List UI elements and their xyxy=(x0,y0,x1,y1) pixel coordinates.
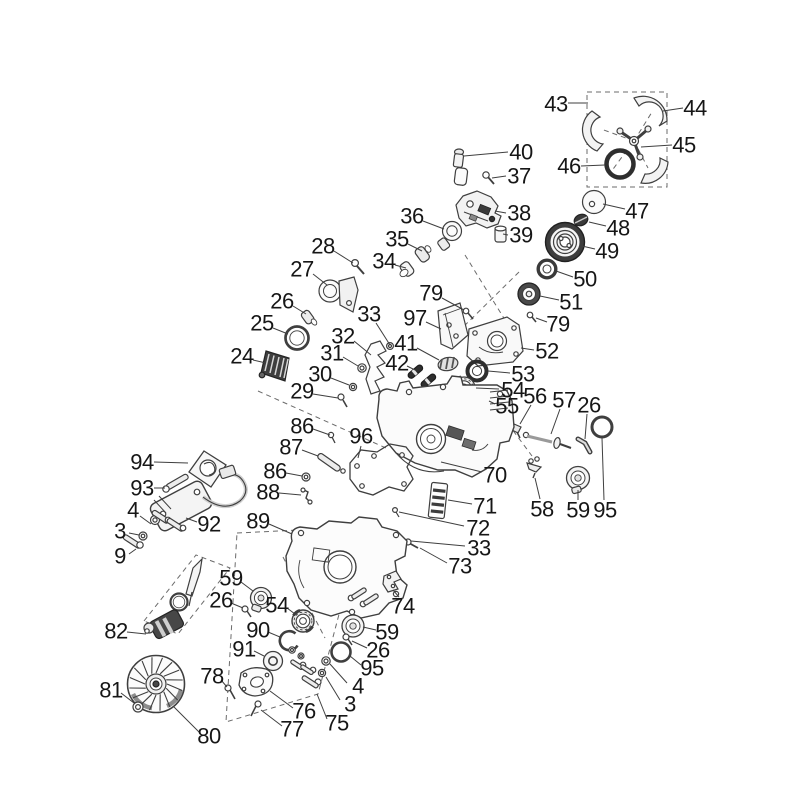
part-label-94: 94 xyxy=(130,450,154,475)
cover-plate-76-screwhole xyxy=(265,673,269,677)
part-label-59: 59 xyxy=(566,498,590,523)
pin-87 xyxy=(317,452,342,472)
part-label-82: 82 xyxy=(104,619,128,644)
leader-51 xyxy=(540,296,559,300)
leader-71 xyxy=(448,500,472,504)
circlip-90 xyxy=(280,631,298,650)
screw-78-shaft xyxy=(230,690,235,699)
washer-3 xyxy=(139,532,147,540)
brake-lever-32 xyxy=(365,341,386,394)
part-label-58: 58 xyxy=(530,497,554,522)
ring-25-inner xyxy=(290,331,304,345)
bracket-74-hole xyxy=(387,575,390,578)
washer-30 xyxy=(349,383,356,390)
clutch-drum-49-hole xyxy=(567,244,571,248)
bracket-74-hole xyxy=(391,584,394,587)
buffer-59b-core xyxy=(258,595,264,601)
leader-33 xyxy=(411,541,465,546)
leader-77 xyxy=(261,710,282,726)
cover-plate-52-hole xyxy=(514,352,518,356)
valve-58-leg xyxy=(533,473,535,478)
part-label-37: 37 xyxy=(507,164,531,189)
part-label-95: 95 xyxy=(593,498,617,523)
part-label-44: 44 xyxy=(683,96,707,121)
leader-36 xyxy=(423,221,444,229)
leader-40 xyxy=(464,152,508,156)
screw-93-head xyxy=(163,486,169,492)
leader-82 xyxy=(127,632,146,634)
screw-26c-shaft xyxy=(247,611,251,617)
part-label-74: 74 xyxy=(391,594,415,619)
part-label-54: 54 xyxy=(265,593,289,618)
leader-87 xyxy=(302,450,318,456)
grommet-36 xyxy=(443,222,462,241)
nut-86 xyxy=(302,473,310,481)
leader-57 xyxy=(551,409,560,434)
leader-48 xyxy=(589,222,606,226)
leader-47 xyxy=(603,204,625,209)
assembly-dash-line xyxy=(465,255,505,320)
guide-plate-97-hole xyxy=(454,334,458,338)
leader-95 xyxy=(602,438,604,500)
part-label-26: 26 xyxy=(209,588,233,613)
leader-27 xyxy=(313,274,327,285)
cover-plate-76-screwhole xyxy=(242,687,246,691)
gasket-96-hole xyxy=(400,453,405,458)
ring-95b xyxy=(332,643,351,662)
parts-diagram: 4344454647484950517940373839363534799728… xyxy=(0,0,800,800)
worm-gear-24-tip xyxy=(259,372,265,378)
leader-30 xyxy=(331,378,349,385)
leader-59 xyxy=(241,582,253,591)
part-label-92: 92 xyxy=(197,512,221,537)
part-label-46: 46 xyxy=(557,154,581,179)
nut-31 xyxy=(358,364,366,372)
part-label-26: 26 xyxy=(577,393,601,418)
leader-37 xyxy=(492,176,506,178)
washer-47-hole xyxy=(589,201,594,206)
brake-pivot-27 xyxy=(319,280,341,302)
leader-38 xyxy=(495,211,506,213)
washer-50 xyxy=(538,260,556,278)
part-label-52: 52 xyxy=(535,339,559,364)
leader-44 xyxy=(663,108,683,111)
washer-4b xyxy=(322,657,330,665)
crankcase-cover-89-hole xyxy=(349,609,354,614)
oil-pump-82-port xyxy=(145,629,149,633)
cover-plate-52-hole xyxy=(473,331,477,335)
cup-washer-51-hole xyxy=(526,291,532,297)
leader-45 xyxy=(641,145,672,147)
crankcase-cover-89-hole xyxy=(393,532,398,537)
part-label-48: 48 xyxy=(606,216,630,241)
leader-9 xyxy=(129,549,136,554)
leader-46 xyxy=(581,165,605,166)
leader-86 xyxy=(286,473,302,476)
part-label-28: 28 xyxy=(311,234,335,259)
pin-72-leg xyxy=(396,512,399,517)
part-label-70: 70 xyxy=(483,463,507,488)
gasket-96-hole xyxy=(360,484,365,489)
leader-28 xyxy=(334,251,353,263)
part-label-49: 49 xyxy=(595,239,619,264)
washer-33 xyxy=(387,343,394,350)
screw-26d-shaft xyxy=(348,639,352,645)
part-label-43: 43 xyxy=(544,92,568,117)
leader-53 xyxy=(488,371,510,373)
part-label-24: 24 xyxy=(230,344,254,369)
part-label-33: 33 xyxy=(357,302,381,327)
part-label-29: 29 xyxy=(290,379,314,404)
leader-26 xyxy=(585,414,587,439)
oil-pump-38-port xyxy=(467,201,473,207)
leader-86 xyxy=(313,429,330,435)
screw-79-shaft xyxy=(532,317,536,322)
washer-3b xyxy=(318,669,325,676)
part-label-87: 87 xyxy=(279,435,303,460)
part-label-50: 50 xyxy=(573,267,597,292)
washer-50-hole xyxy=(543,265,551,273)
crankcase-cover-89-hole xyxy=(298,530,303,535)
oil-seal-53-hole xyxy=(472,366,481,375)
clutch-spider-hub-hole xyxy=(632,139,636,143)
ring-25 xyxy=(286,327,309,350)
part-label-9: 9 xyxy=(114,544,126,569)
cover-plate-52-bore xyxy=(488,332,507,351)
clutch-shoe-top xyxy=(634,96,667,126)
coil-screw-head xyxy=(180,525,186,531)
part-label-89: 89 xyxy=(246,509,270,534)
clutch-shoe-bottom xyxy=(641,158,668,183)
leader-50 xyxy=(556,271,573,277)
brake-pivot-27-hole xyxy=(347,301,352,306)
leader-80 xyxy=(174,707,199,732)
part-label-57: 57 xyxy=(552,388,576,413)
clutch-spring-ring xyxy=(607,151,634,178)
leader-31 xyxy=(343,357,358,366)
nut-81 xyxy=(133,702,143,712)
clutch-shoe-left xyxy=(582,111,603,151)
clip-88-eye xyxy=(301,488,305,492)
part-label-4: 4 xyxy=(127,498,139,523)
ring-95 xyxy=(592,417,612,437)
part-label-78: 78 xyxy=(200,664,224,689)
rod-57-tip xyxy=(560,444,571,448)
cap-40-body xyxy=(454,167,468,185)
gasket-96-hole xyxy=(372,454,377,459)
screw-77-shaft xyxy=(251,706,256,716)
leader-59 xyxy=(363,627,376,630)
screw-79-shaft xyxy=(468,313,473,319)
part-label-39: 39 xyxy=(509,223,533,248)
buffer-59-core xyxy=(575,475,581,481)
leader-90 xyxy=(268,632,280,637)
oiler-trigger xyxy=(186,559,202,596)
rod-57-shaft xyxy=(527,436,552,442)
part-label-73: 73 xyxy=(448,554,472,579)
cap-40-stem xyxy=(453,154,464,168)
clutch-spider-pad xyxy=(617,128,623,134)
part-label-56: 56 xyxy=(523,384,547,409)
clutch-drum-49-hole xyxy=(559,237,563,241)
screw-9-head xyxy=(137,542,143,548)
part-label-55: 55 xyxy=(495,394,519,419)
page: 4344454647484950517940373839363534799728… xyxy=(0,0,800,800)
leader-29 xyxy=(313,394,338,398)
part-label-79: 79 xyxy=(419,281,443,306)
leader-3 xyxy=(326,677,340,700)
part-label-45: 45 xyxy=(672,133,696,158)
leader-88 xyxy=(279,493,301,495)
screw-79-head xyxy=(463,308,469,314)
rod-57-plunger xyxy=(553,437,561,449)
leader-41 xyxy=(417,348,439,360)
clutch-spider-pad xyxy=(637,154,643,160)
screw-86-shaft xyxy=(332,437,335,443)
brake-pivot-27-bracket xyxy=(339,277,358,312)
screw-29-shaft xyxy=(343,400,347,407)
valve-58-body xyxy=(527,463,541,472)
clip-88-eye xyxy=(308,500,312,504)
leader-94 xyxy=(154,462,188,463)
valve-58-eyelet xyxy=(529,459,533,463)
crankcase-70-stud xyxy=(440,384,445,389)
buffer-59c-core xyxy=(350,623,356,629)
part-label-75: 75 xyxy=(325,711,349,736)
leader-25 xyxy=(273,328,288,334)
cover-plate-76-screwhole xyxy=(243,673,247,677)
part-label-88: 88 xyxy=(256,480,280,505)
pin-87-tip xyxy=(341,469,345,473)
small-washer xyxy=(298,653,304,659)
leader-89 xyxy=(269,524,292,534)
small-washer xyxy=(289,647,295,653)
gasket-96-hole xyxy=(402,482,407,487)
oil-pump-38-nipple xyxy=(489,216,494,221)
part-label-42: 42 xyxy=(385,351,409,376)
leader-3 xyxy=(129,533,139,535)
part-label-40: 40 xyxy=(509,140,533,165)
valve-58-eyelet xyxy=(535,457,539,461)
part-label-91: 91 xyxy=(232,637,256,662)
leader-4 xyxy=(140,516,151,524)
part-label-26: 26 xyxy=(270,289,294,314)
part-label-80: 80 xyxy=(197,724,221,749)
part-label-79: 79 xyxy=(546,312,570,337)
screw-79-head xyxy=(527,312,533,318)
leader-26 xyxy=(293,306,306,314)
part-label-97: 97 xyxy=(403,306,427,331)
flywheel-80-shaft xyxy=(153,681,159,687)
washer-91 xyxy=(264,652,283,671)
leader-73 xyxy=(420,548,447,563)
pin-72 xyxy=(393,508,398,513)
bearing-54b-bore xyxy=(300,618,307,625)
part-label-34: 34 xyxy=(372,249,396,274)
part-label-3: 3 xyxy=(114,519,126,544)
crankcase-cover-89-hole xyxy=(304,600,309,605)
gasket-96-hole xyxy=(355,464,360,469)
part-label-25: 25 xyxy=(250,311,274,336)
part-label-81: 81 xyxy=(99,678,123,703)
leader-26 xyxy=(352,641,367,648)
screw-29-head xyxy=(338,394,344,400)
part-label-27: 27 xyxy=(290,257,314,282)
part-label-77: 77 xyxy=(280,717,304,742)
part-label-36: 36 xyxy=(400,204,424,229)
cover-plate-52-hole xyxy=(512,326,516,330)
ignition-coil-92-hole xyxy=(194,489,200,495)
bushing-39-top xyxy=(495,226,506,231)
part-label-96: 96 xyxy=(349,424,373,449)
clutch-spider-pad xyxy=(645,126,651,132)
cover-plate-76-screwhole xyxy=(261,689,265,693)
oiler-oring-inner xyxy=(173,596,185,608)
leader-4 xyxy=(330,664,347,683)
crankcase-70-stud xyxy=(406,389,411,394)
screw-28-shaft xyxy=(357,266,364,274)
